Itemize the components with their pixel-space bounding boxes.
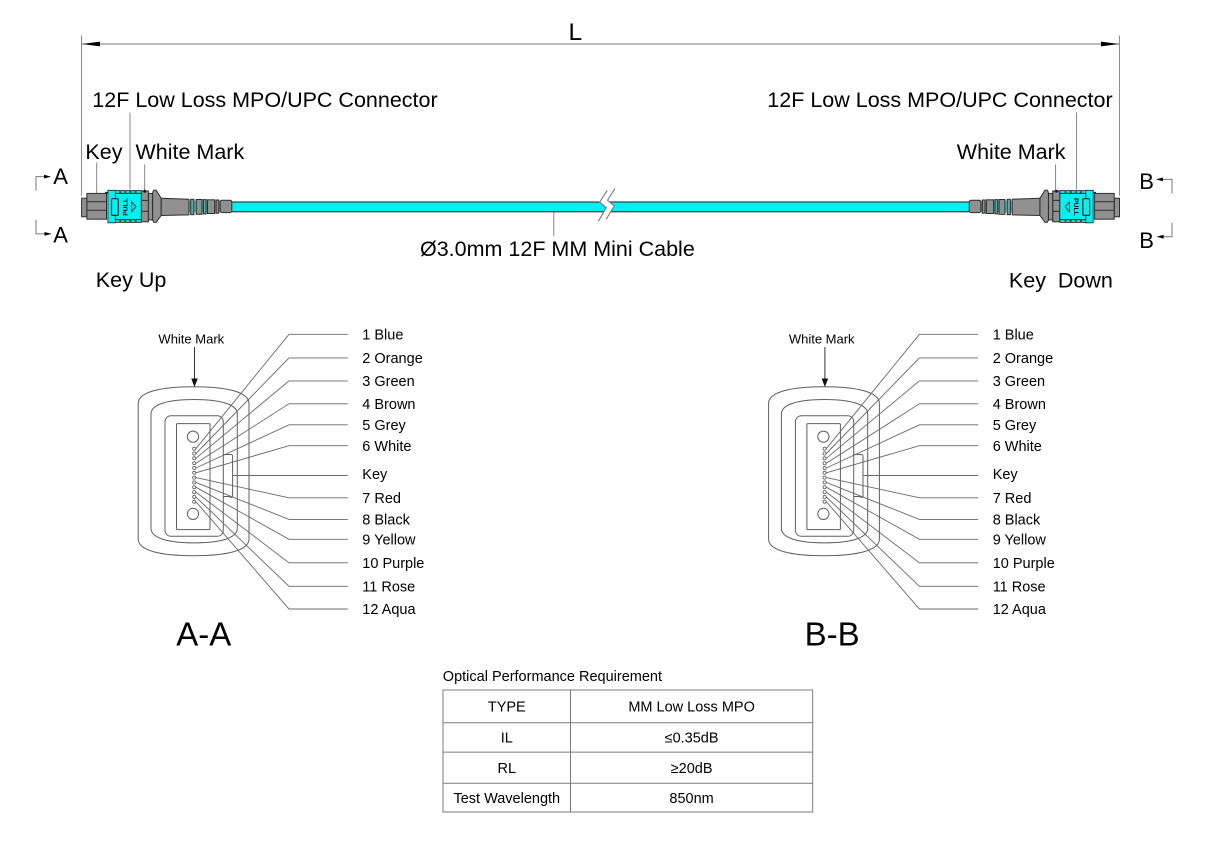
svg-text:White Mark: White Mark [957, 140, 1066, 164]
svg-text:Key Up: Key Up [96, 268, 167, 292]
svg-text:7 Red: 7 Red [362, 491, 401, 507]
svg-text:12F Low Loss MPO/UPC Connector: 12F Low Loss MPO/UPC Connector [767, 88, 1112, 112]
svg-text:2 Orange: 2 Orange [362, 351, 422, 367]
svg-text:L: L [569, 19, 583, 46]
svg-text:3 Green: 3 Green [362, 374, 414, 390]
svg-text:6 White: 6 White [993, 439, 1042, 455]
svg-text:850nm: 850nm [669, 791, 713, 807]
svg-text:8 Black: 8 Black [993, 513, 1041, 529]
svg-text:B-B: B-B [805, 616, 860, 653]
svg-text:TYPE: TYPE [488, 700, 526, 716]
svg-text:5 Grey: 5 Grey [362, 418, 406, 434]
svg-text:2 Orange: 2 Orange [993, 351, 1053, 367]
svg-text:A-A: A-A [176, 616, 231, 653]
svg-text:Test Wavelength: Test Wavelength [453, 791, 560, 807]
svg-text:7 Red: 7 Red [993, 491, 1032, 507]
svg-text:RL: RL [498, 761, 517, 777]
svg-text:Key: Key [362, 467, 388, 483]
svg-text:Key: Key [85, 140, 122, 164]
svg-text:3 Green: 3 Green [993, 374, 1045, 390]
svg-text:≤0.35dB: ≤0.35dB [665, 731, 719, 747]
svg-text:4 Brown: 4 Brown [362, 397, 415, 413]
svg-text:12 Aqua: 12 Aqua [993, 602, 1047, 618]
svg-text:≥20dB: ≥20dB [671, 761, 713, 777]
svg-text:PULL: PULL [1072, 198, 1079, 216]
svg-text:11 Rose: 11 Rose [993, 580, 1046, 596]
svg-text:Optical Performance Requiremen: Optical Performance Requirement [443, 669, 662, 685]
svg-text:10 Purple: 10 Purple [993, 556, 1055, 572]
svg-text:B: B [1139, 228, 1154, 253]
svg-text:White Mark: White Mark [789, 332, 855, 347]
svg-text:IL: IL [501, 731, 513, 747]
svg-text:Ø3.0mm 12F MM Mini Cable: Ø3.0mm 12F MM Mini Cable [420, 237, 695, 261]
svg-text:1 Blue: 1 Blue [362, 328, 403, 344]
svg-text:A: A [53, 222, 68, 247]
svg-text:9 Yellow: 9 Yellow [362, 533, 416, 549]
svg-text:12 Aqua: 12 Aqua [362, 602, 416, 618]
svg-text:1 Blue: 1 Blue [993, 328, 1034, 344]
svg-text:White Mark: White Mark [158, 332, 224, 347]
svg-text:MM Low Loss MPO: MM Low Loss MPO [628, 700, 755, 716]
svg-text:10 Purple: 10 Purple [362, 556, 424, 572]
svg-text:White Mark: White Mark [136, 140, 245, 164]
svg-text:12F Low Loss MPO/UPC Connector: 12F Low Loss MPO/UPC Connector [92, 88, 437, 112]
svg-text:4 Brown: 4 Brown [993, 397, 1046, 413]
svg-text:B: B [1139, 169, 1154, 194]
svg-text:6 White: 6 White [362, 439, 411, 455]
svg-text:9 Yellow: 9 Yellow [993, 533, 1047, 549]
svg-text:5 Grey: 5 Grey [993, 418, 1037, 434]
svg-text:A: A [53, 164, 68, 189]
svg-text:Key Down: Key Down [1009, 269, 1113, 293]
svg-text:11 Rose: 11 Rose [362, 580, 415, 596]
svg-text:Key: Key [993, 467, 1019, 483]
svg-text:PULL: PULL [122, 198, 129, 216]
svg-text:8 Black: 8 Black [362, 513, 410, 529]
